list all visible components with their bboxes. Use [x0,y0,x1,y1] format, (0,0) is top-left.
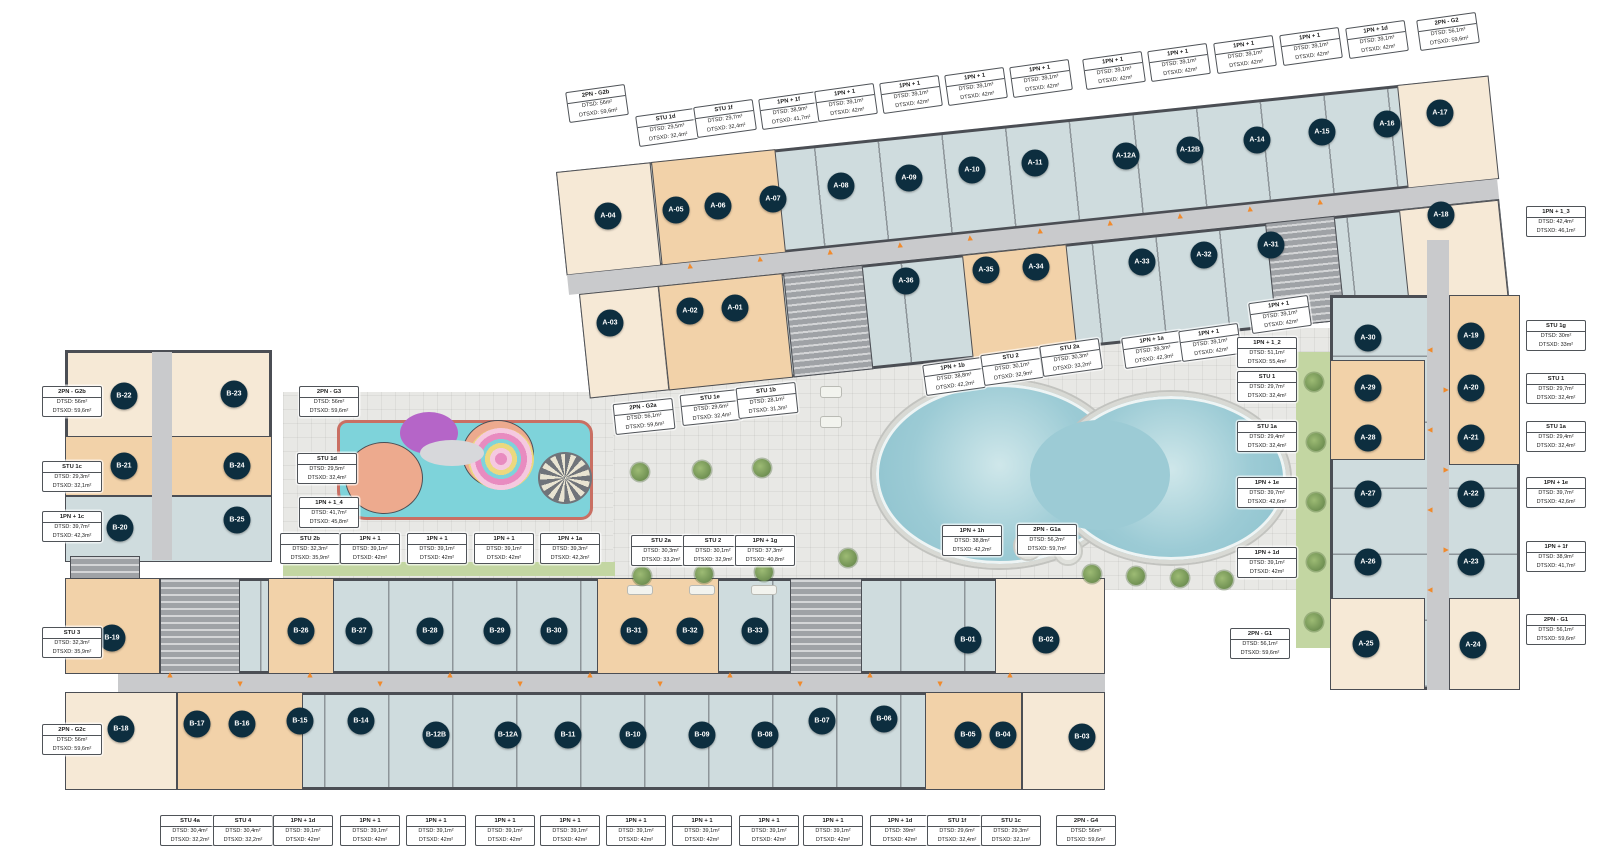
tree [631,463,649,481]
unit-type-label: 2PN - G2 DTSD: 56,1m² DTSXD: 59,6m² [1416,12,1480,51]
unit-marker-a-09[interactable]: A-09 [896,165,923,192]
unit-marker-b-09[interactable]: B-09 [689,722,716,749]
unit-marker-b-32[interactable]: B-32 [677,618,704,645]
unit-type-name: 1PN + 1 [407,816,465,827]
unit-dtsxd-area: DTSXD: 32,4m² [1238,442,1296,451]
unit-dtsxd-area: DTSXD: 32,4m² [1527,394,1585,403]
unit-type-label: STU 2b DTSD: 32,3m² DTSXD: 35,9m² [280,533,340,564]
unit-type-name: 2PN - G1 [1527,615,1585,626]
unit-marker-a-23[interactable]: A-23 [1458,549,1485,576]
unit-type-name: STU 1g [1527,321,1585,332]
unit-marker-b-30[interactable]: B-30 [541,618,568,645]
unit-type-label: 1PN + 1a DTSD: 39,3m² DTSXD: 42,3m² [540,533,600,564]
unit-type-name: STU 2b [281,534,339,545]
unit-dtsd-area: DTSD: 39,1m² [476,827,534,836]
unit-dtsd-area: DTSD: 56,1m² [1231,640,1289,649]
unit-type-label: 1PN + 1d DTSD: 39,1m² DTSXD: 42m² [1237,547,1297,578]
direction-arrow-icon: ▲ [1426,426,1435,435]
direction-arrow-icon: ▲ [866,671,875,680]
unit-type-label: 1PN + 1 DTSD: 39,1m² DTSXD: 42m² [1147,43,1211,82]
unit-dtsd-area: DTSD: 30,4m² [161,827,219,836]
unit-marker-b-20[interactable]: B-20 [107,515,134,542]
unit-marker-b-31[interactable]: B-31 [621,618,648,645]
unit-dtsxd-area: DTSXD: 42m² [476,836,534,845]
unit-type-name: STU 1c [43,462,101,473]
unit-dtsxd-area: DTSXD: 42m² [871,836,929,845]
unit-marker-b-25[interactable]: B-25 [224,507,251,534]
unit-type-name: 1PN + 1 [341,534,399,545]
unit-type-name: 1PN + 1_4 [300,498,358,509]
unit-marker-a-20[interactable]: A-20 [1458,375,1485,402]
unit-type-label: STU 4 DTSD: 30,4m² DTSXD: 32,2m² [213,815,273,846]
unit-type-label: 1PN + 1 DTSD: 39,1m² DTSXD: 42m² [475,815,535,846]
direction-arrow-icon: ▲ [1442,466,1451,475]
unit-dtsxd-area: DTSXD: 32,1m² [982,836,1040,845]
unit-marker-b-08[interactable]: B-08 [752,722,779,749]
unit-type-name: STU 1 [1238,372,1296,383]
unit-type-name: STU 2a [632,536,690,547]
unit-marker-a-12a[interactable]: A-12A [1113,143,1140,170]
unit-marker-a-31[interactable]: A-31 [1258,232,1285,259]
unit-type-label: STU 1b DTSD: 28,1m² DTSXD: 31,3m² [736,382,799,419]
block-a-unit-seg [658,273,793,390]
unit-dtsxd-area: DTSXD: 59,6m² [1057,836,1115,845]
block-b-unit-seg [177,692,303,790]
unit-type-label: STU 3 DTSD: 32,3m² DTSXD: 35,9m² [42,627,102,658]
unit-type-name: STU 4 [214,816,272,827]
unit-marker-a-28[interactable]: A-28 [1355,425,1382,452]
unit-marker-b-17[interactable]: B-17 [184,711,211,738]
direction-arrow-icon: ▲ [1426,506,1435,515]
unit-type-name: 1PN + 1d [871,816,929,827]
unit-dtsd-area: DTSD: 39,1m² [607,827,665,836]
unit-type-name: STU 4a [161,816,219,827]
unit-marker-b-10[interactable]: B-10 [620,722,647,749]
unit-dtsd-area: DTSD: 39,1m² [475,545,533,554]
unit-marker-b-14[interactable]: B-14 [348,708,375,735]
unit-type-name: 1PN + 1_3 [1527,207,1585,218]
stair-core [783,265,873,378]
unit-dtsxd-area: DTSXD: 42m² [274,836,332,845]
unit-type-label: 1PN + 1h DTSD: 38,8m² DTSXD: 42,2m² [942,525,1002,556]
unit-dtsxd-area: DTSXD: 59,6m² [300,407,358,416]
unit-type-name: 1PN + 1_2 [1238,338,1296,349]
bench-row [751,585,777,595]
unit-marker-a-16[interactable]: A-16 [1374,111,1401,138]
unit-dtsxd-area: DTSXD: 33,2m² [632,556,690,565]
unit-dtsd-area: DTSD: 39,1m² [673,827,731,836]
unit-marker-b-16[interactable]: B-16 [229,711,256,738]
unit-marker-b-19[interactable]: B-19 [99,625,126,652]
unit-marker-a-10[interactable]: A-10 [959,157,986,184]
unit-marker-a-12b[interactable]: A-12B [1177,137,1204,164]
unit-type-label: 1PN + 1 DTSD: 39,1m² DTSXD: 42m² [1009,59,1073,98]
unit-marker-a-34[interactable]: A-34 [1023,254,1050,281]
unit-marker-b-22[interactable]: B-22 [111,383,138,410]
block-b-cluster-corridor [152,352,172,560]
unit-type-label: STU 1c DTSD: 29,3m² DTSXD: 32,1m² [981,815,1041,846]
unit-type-label: 1PN + 1d DTSD: 39,1m² DTSXD: 42m² [273,815,333,846]
unit-type-name: 1PN + 1h [943,526,1001,537]
unit-dtsxd-area: DTSXD: 32,4m² [928,836,986,845]
unit-dtsxd-area: DTSXD: 32,2m² [214,836,272,845]
unit-dtsd-area: DTSD: 30,1m² [684,547,742,556]
bench-row [689,585,715,595]
block-b-corridor [118,674,1105,692]
unit-type-label: 1PN + 1 DTSD: 39,1m² DTSXD: 42m² [407,533,467,564]
unit-dtsd-area: DTSD: 39m² [871,827,929,836]
unit-dtsxd-area: DTSXD: 59,6m² [43,745,101,754]
bench-row [820,416,842,428]
unit-type-name: STU 1a [1527,422,1585,433]
unit-type-label: 2PN - G1a DTSD: 56,2m² DTSXD: 59,7m² [1017,524,1077,555]
unit-type-label: STU 1d DTSD: 29,5m² DTSXD: 32,4m² [297,453,357,484]
unit-dtsd-area: DTSD: 39,1m² [341,545,399,554]
unit-dtsd-area: DTSD: 37,3m² [736,547,794,556]
unit-marker-b-01[interactable]: B-01 [955,627,982,654]
unit-dtsd-area: DTSD: 39,3m² [541,545,599,554]
unit-dtsd-area: DTSD: 39,1m² [274,827,332,836]
bench-row [820,386,842,398]
unit-dtsd-area: DTSD: 29,4m² [1527,433,1585,442]
direction-arrow-icon: ▲ [306,671,315,680]
unit-dtsd-area: DTSD: 39,1m² [541,827,599,836]
unit-type-label: STU 2a DTSD: 30,3m² DTSXD: 33,2m² [631,535,691,566]
unit-marker-a-35[interactable]: A-35 [973,257,1000,284]
unit-dtsxd-area: DTSXD: 40,8m² [736,556,794,565]
direction-arrow-icon: ▲ [1006,671,1015,680]
unit-type-label: STU 1 DTSD: 29,7m² DTSXD: 32,4m² [1237,371,1297,402]
bench-row [627,585,653,595]
unit-dtsd-area: DTSD: 32,3m² [281,545,339,554]
unit-dtsd-area: DTSD: 42,4m² [1527,218,1585,227]
unit-dtsxd-area: DTSXD: 33m² [1527,341,1585,350]
tree [755,563,773,581]
unit-type-label: 1PN + 1 DTSD: 39,1m² DTSXD: 42m² [879,75,943,114]
unit-dtsxd-area: DTSXD: 42m² [740,836,798,845]
unit-type-label: 1PN + 1_2 DTSD: 51,1m² DTSXD: 55,4m² [1237,337,1297,368]
unit-type-label: STU 1d DTSD: 29,5m² DTSXD: 32,4m² [635,108,699,147]
direction-arrow-icon: ▲ [446,671,455,680]
unit-marker-a-14[interactable]: A-14 [1244,127,1271,154]
unit-dtsxd-area: DTSXD: 32,2m² [161,836,219,845]
block-b-unit-seg [995,578,1105,674]
unit-type-name: 1PN + 1d [274,816,332,827]
tree [1307,433,1325,451]
block-a-unit-seg [1397,76,1499,189]
unit-type-label: 1PN + 1f DTSD: 38,9m² DTSXD: 41,7m² [1526,541,1586,572]
unit-marker-a-22[interactable]: A-22 [1458,481,1485,508]
direction-arrow-icon: ▲ [1175,211,1185,221]
unit-type-label: 2PN - G2b DTSD: 56m² DTSXD: 59,6m² [565,84,629,123]
unit-type-label: STU 1a DTSD: 29,4m² DTSXD: 32,4m² [1526,421,1586,452]
unit-type-label: STU 1e DTSD: 29,6m² DTSXD: 32,4m² [680,389,743,426]
unit-type-label: 1PN + 1f DTSD: 38,9m² DTSXD: 41,7m² [758,91,822,130]
unit-dtsxd-area: DTSXD: 59,7m² [1018,545,1076,554]
unit-dtsd-area: DTSD: 39,1m² [1238,559,1296,568]
unit-type-label: 1PN + 1e DTSD: 39,7m² DTSXD: 42,6m² [1237,477,1297,508]
unit-marker-a-18[interactable]: A-18 [1428,202,1455,229]
unit-dtsxd-area: DTSXD: 42,3m² [541,554,599,563]
unit-dtsxd-area: DTSXD: 41,7m² [1527,562,1585,571]
direction-arrow-icon: ▲ [1442,546,1451,555]
unit-type-label: STU 1a DTSD: 29,4m² DTSXD: 32,4m² [1237,421,1297,452]
unit-marker-a-27[interactable]: A-27 [1355,481,1382,508]
unit-dtsxd-area: DTSXD: 46,1m² [1527,227,1585,236]
unit-marker-a-04[interactable]: A-04 [595,203,622,230]
tree [1083,565,1101,583]
unit-dtsd-area: DTSD: 30m² [1527,332,1585,341]
unit-marker-a-25[interactable]: A-25 [1353,631,1380,658]
unit-marker-b-05[interactable]: B-05 [955,722,982,749]
unit-type-label: 1PN + 1c DTSD: 39,7m² DTSXD: 42,3m² [42,511,102,542]
unit-type-name: 2PN - G1a [1018,525,1076,536]
unit-type-name: STU 1f [928,816,986,827]
unit-marker-b-21[interactable]: B-21 [111,453,138,480]
unit-type-name: 1PN + 1g [736,536,794,547]
unit-type-name: 1PN + 1 [804,816,862,827]
unit-type-name: STU 1 [1527,374,1585,385]
unit-dtsd-area: DTSD: 56m² [1057,827,1115,836]
direction-arrow-icon: ▲ [1245,204,1255,214]
unit-marker-a-33[interactable]: A-33 [1129,249,1156,276]
unit-dtsxd-area: DTSXD: 59,6m² [1527,635,1585,644]
unit-dtsxd-area: DTSXD: 45,8m² [300,518,358,527]
unit-marker-a-01[interactable]: A-01 [722,295,749,322]
unit-type-name: 2PN - G3 [300,387,358,398]
unit-dtsxd-area: DTSXD: 35,9m² [281,554,339,563]
unit-dtsxd-area: DTSXD: 42m² [341,554,399,563]
tree [1215,571,1233,589]
unit-type-label: STU 1f DTSD: 29,7m² DTSXD: 32,4m² [693,99,757,138]
unit-dtsxd-area: DTSXD: 32,4m² [298,474,356,483]
tree [1305,613,1323,631]
unit-marker-b-24[interactable]: B-24 [224,453,251,480]
unit-dtsd-area: DTSD: 29,7m² [1238,383,1296,392]
unit-marker-a-19[interactable]: A-19 [1458,323,1485,350]
unit-type-label: 1PN + 1 DTSD: 39,1m² DTSXD: 42m² [606,815,666,846]
unit-dtsxd-area: DTSXD: 35,9m² [43,648,101,657]
unit-marker-a-36[interactable]: A-36 [893,268,920,295]
unit-type-name: 1PN + 1f [1527,542,1585,553]
unit-marker-a-03[interactable]: A-03 [597,310,624,337]
unit-dtsd-area: DTSD: 56,1m² [1527,626,1585,635]
unit-type-label: 1PN + 1 DTSD: 39,1m² DTSXD: 42m² [814,83,878,122]
unit-type-name: 2PN - G2b [43,387,101,398]
unit-dtsxd-area: DTSXD: 42,2m² [943,546,1001,555]
unit-marker-b-11[interactable]: B-11 [555,722,582,749]
unit-type-label: 1PN + 1 DTSD: 39,1m² DTSXD: 42m² [739,815,799,846]
unit-marker-b-18[interactable]: B-18 [108,716,135,743]
direction-arrow-icon: ▲ [1035,226,1045,236]
unit-marker-b-29[interactable]: B-29 [484,618,511,645]
unit-type-name: STU 3 [43,628,101,639]
unit-type-name: 2PN - G1 [1231,629,1289,640]
direction-arrow-icon: ▲ [685,261,695,271]
unit-type-name: 1PN + 1 [476,816,534,827]
unit-type-label: 1PN + 1 DTSD: 39,1m² DTSXD: 42m² [340,815,400,846]
direction-arrow-icon: ▲ [895,240,905,250]
unit-type-label: 2PN - G1 DTSD: 56,1m² DTSXD: 59,6m² [1526,614,1586,645]
unit-type-label: 1PN + 1 DTSD: 39,1m² DTSXD: 42m² [406,815,466,846]
unit-type-label: STU 4a DTSD: 30,4m² DTSXD: 32,2m² [160,815,220,846]
unit-dtsd-area: DTSD: 39,1m² [740,827,798,836]
unit-type-label: STU 1g DTSD: 30m² DTSXD: 33m² [1526,320,1586,351]
tree [693,461,711,479]
floor-plan-canvas: ▲▲▲▲▲▲▲▲▲▲▲▲▲▲▲▲▲▲▲▲▲▲▲▲▲▲▲▲▲▲ A-04A-05A… [0,0,1600,853]
unit-marker-a-24[interactable]: A-24 [1460,632,1487,659]
tree [1307,553,1325,571]
unit-marker-a-32[interactable]: A-32 [1191,242,1218,269]
tree [839,549,857,567]
unit-type-name: 1PN + 1a [541,534,599,545]
block-a-unit-seg [579,286,669,399]
unit-type-name: 1PN + 1e [1527,478,1585,489]
tree [1171,569,1189,587]
unit-dtsd-area: DTSD: 29,4m² [1238,433,1296,442]
unit-marker-a-21[interactable]: A-21 [1458,425,1485,452]
unit-marker-a-15[interactable]: A-15 [1309,119,1336,146]
unit-type-name: 1PN + 1 [673,816,731,827]
unit-dtsxd-area: DTSXD: 32,4m² [1527,442,1585,451]
tree [753,459,771,477]
unit-type-label: 1PN + 1 DTSD: 39,1m² DTSXD: 42m² [1213,35,1277,74]
unit-type-label: 1PN + 1 DTSD: 39,1m² DTSXD: 42m² [340,533,400,564]
tree [1127,567,1145,585]
unit-dtsd-area: DTSD: 30,4m² [214,827,272,836]
unit-dtsd-area: DTSD: 29,7m² [1527,385,1585,394]
unit-dtsxd-area: DTSXD: 42m² [1238,568,1296,577]
unit-marker-b-23[interactable]: B-23 [221,381,248,408]
direction-arrow-icon: ▲ [166,671,175,680]
unit-type-label: 2PN - G2c DTSD: 56m² DTSXD: 59,6m² [42,724,102,755]
unit-type-name: 1PN + 1c [43,512,101,523]
unit-dtsxd-area: DTSXD: 42m² [408,554,466,563]
unit-marker-b-33[interactable]: B-33 [742,618,769,645]
unit-type-name: 1PN + 1 [475,534,533,545]
unit-dtsxd-area: DTSXD: 32,9m² [684,556,742,565]
grass-strip [283,562,615,576]
playground-platform [420,440,484,466]
unit-dtsxd-area: DTSXD: 42m² [475,554,533,563]
unit-dtsd-area: DTSD: 30,3m² [632,547,690,556]
unit-dtsd-area: DTSD: 56,2m² [1018,536,1076,545]
unit-marker-b-02[interactable]: B-02 [1033,627,1060,654]
unit-type-label: 1PN + 1 DTSD: 39,1m² DTSXD: 42m² [944,67,1008,106]
unit-dtsxd-area: DTSXD: 42m² [341,836,399,845]
unit-type-label: 2PN - G1 DTSD: 56,1m² DTSXD: 59,6m² [1230,628,1290,659]
unit-dtsd-area: DTSD: 29,6m² [928,827,986,836]
unit-dtsd-area: DTSD: 41,7m² [300,509,358,518]
swimming-pool-waist [1030,420,1170,530]
unit-dtsd-area: DTSD: 39,1m² [408,545,466,554]
tree [1307,493,1325,511]
unit-dtsxd-area: DTSXD: 42,3m² [43,532,101,541]
unit-marker-b-27[interactable]: B-27 [346,618,373,645]
unit-marker-a-08[interactable]: A-08 [828,173,855,200]
unit-type-label: STU 2 DTSD: 30,1m² DTSXD: 32,9m² [683,535,743,566]
unit-type-name: 2PN - G4 [1057,816,1115,827]
unit-type-label: 1PN + 1 DTSD: 39,1m² DTSXD: 42m² [803,815,863,846]
unit-marker-b-04[interactable]: B-04 [990,722,1017,749]
unit-marker-a-07[interactable]: A-07 [760,186,787,213]
unit-type-label: 1PN + 1_3 DTSD: 42,4m² DTSXD: 46,1m² [1526,206,1586,237]
unit-dtsd-area: DTSD: 39,1m² [407,827,465,836]
unit-dtsd-area: DTSD: 32,3m² [43,639,101,648]
unit-type-name: 1PN + 1d [1238,548,1296,559]
unit-marker-a-30[interactable]: A-30 [1355,325,1382,352]
unit-marker-b-03[interactable]: B-03 [1069,724,1096,751]
unit-dtsd-area: DTSD: 56m² [43,398,101,407]
playground-spoke-canopy [538,452,592,504]
direction-arrow-icon: ▲ [656,680,665,689]
tree [633,567,651,585]
unit-dtsd-area: DTSD: 29,5m² [298,465,356,474]
unit-marker-b-06[interactable]: B-06 [871,706,898,733]
direction-arrow-icon: ▲ [796,680,805,689]
direction-arrow-icon: ▲ [236,680,245,689]
unit-marker-a-26[interactable]: A-26 [1355,549,1382,576]
unit-type-label: 2PN - G2b DTSD: 56m² DTSXD: 59,6m² [42,386,102,417]
unit-marker-b-07[interactable]: B-07 [809,708,836,735]
direction-arrow-icon: ▲ [1442,386,1451,395]
unit-marker-b-15[interactable]: B-15 [287,708,314,735]
direction-arrow-icon: ▲ [936,680,945,689]
unit-marker-a-17[interactable]: A-17 [1427,100,1454,127]
unit-type-name: 1PN + 1 [607,816,665,827]
unit-marker-a-05[interactable]: A-05 [663,197,690,224]
unit-dtsd-area: DTSD: 29,3m² [982,827,1040,836]
stair-core [790,578,862,674]
unit-marker-a-11[interactable]: A-11 [1022,150,1049,177]
unit-dtsd-area: DTSD: 51,1m² [1238,349,1296,358]
unit-type-label: 2PN - G2a DTSD: 56,1m² DTSXD: 59,6m² [613,398,676,435]
unit-type-name: STU 2 [684,536,742,547]
unit-type-name: STU 1c [982,816,1040,827]
unit-dtsd-area: DTSD: 29,3m² [43,473,101,482]
unit-type-name: 1PN + 1 [541,816,599,827]
unit-type-label: 1PN + 1_4 DTSD: 41,7m² DTSXD: 45,8m² [299,497,359,528]
unit-marker-b-12a[interactable]: B-12A [495,722,522,749]
unit-dtsxd-area: DTSXD: 42m² [541,836,599,845]
unit-marker-a-06[interactable]: A-06 [705,193,732,220]
unit-dtsxd-area: DTSXD: 59,6m² [1231,649,1289,658]
unit-dtsxd-area: DTSXD: 32,1m² [43,482,101,491]
unit-type-label: STU 1 DTSD: 29,7m² DTSXD: 32,4m² [1526,373,1586,404]
unit-type-label: 1PN + 1d DTSD: 39,1m² DTSXD: 42m² [1345,20,1409,59]
unit-dtsd-area: DTSD: 39,7m² [1238,489,1296,498]
unit-dtsd-area: DTSD: 56m² [300,398,358,407]
unit-type-label: 1PN + 1 DTSD: 39,1m² DTSXD: 42m² [540,815,600,846]
unit-dtsd-area: DTSD: 38,9m² [1527,553,1585,562]
unit-marker-a-02[interactable]: A-02 [677,298,704,325]
unit-type-label: 1PN + 1 DTSD: 39,1m² DTSXD: 42m² [672,815,732,846]
unit-dtsxd-area: DTSXD: 42,6m² [1238,498,1296,507]
direction-arrow-icon: ▲ [1426,346,1435,355]
direction-arrow-icon: ▲ [825,247,835,257]
tree [1305,373,1323,391]
stair-core [160,578,240,674]
unit-dtsd-area: DTSD: 38,8m² [943,537,1001,546]
direction-arrow-icon: ▲ [755,254,765,264]
unit-marker-a-29[interactable]: A-29 [1355,375,1382,402]
direction-arrow-icon: ▲ [1105,218,1115,228]
unit-dtsxd-area: DTSXD: 42m² [607,836,665,845]
unit-marker-b-12b[interactable]: B-12B [423,722,450,749]
unit-type-label: 1PN + 1g DTSD: 37,3m² DTSXD: 40,8m² [735,535,795,566]
unit-marker-b-28[interactable]: B-28 [417,618,444,645]
unit-marker-b-26[interactable]: B-26 [288,618,315,645]
